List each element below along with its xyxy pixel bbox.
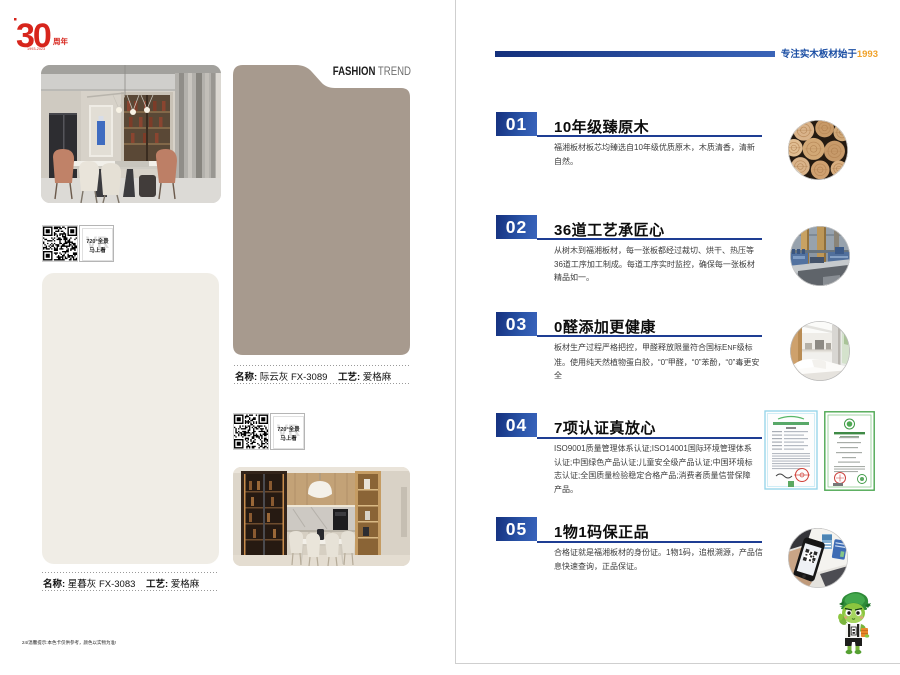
svg-text:周年: 周年 xyxy=(53,36,68,46)
svg-text:1993-2023: 1993-2023 xyxy=(27,47,45,51)
